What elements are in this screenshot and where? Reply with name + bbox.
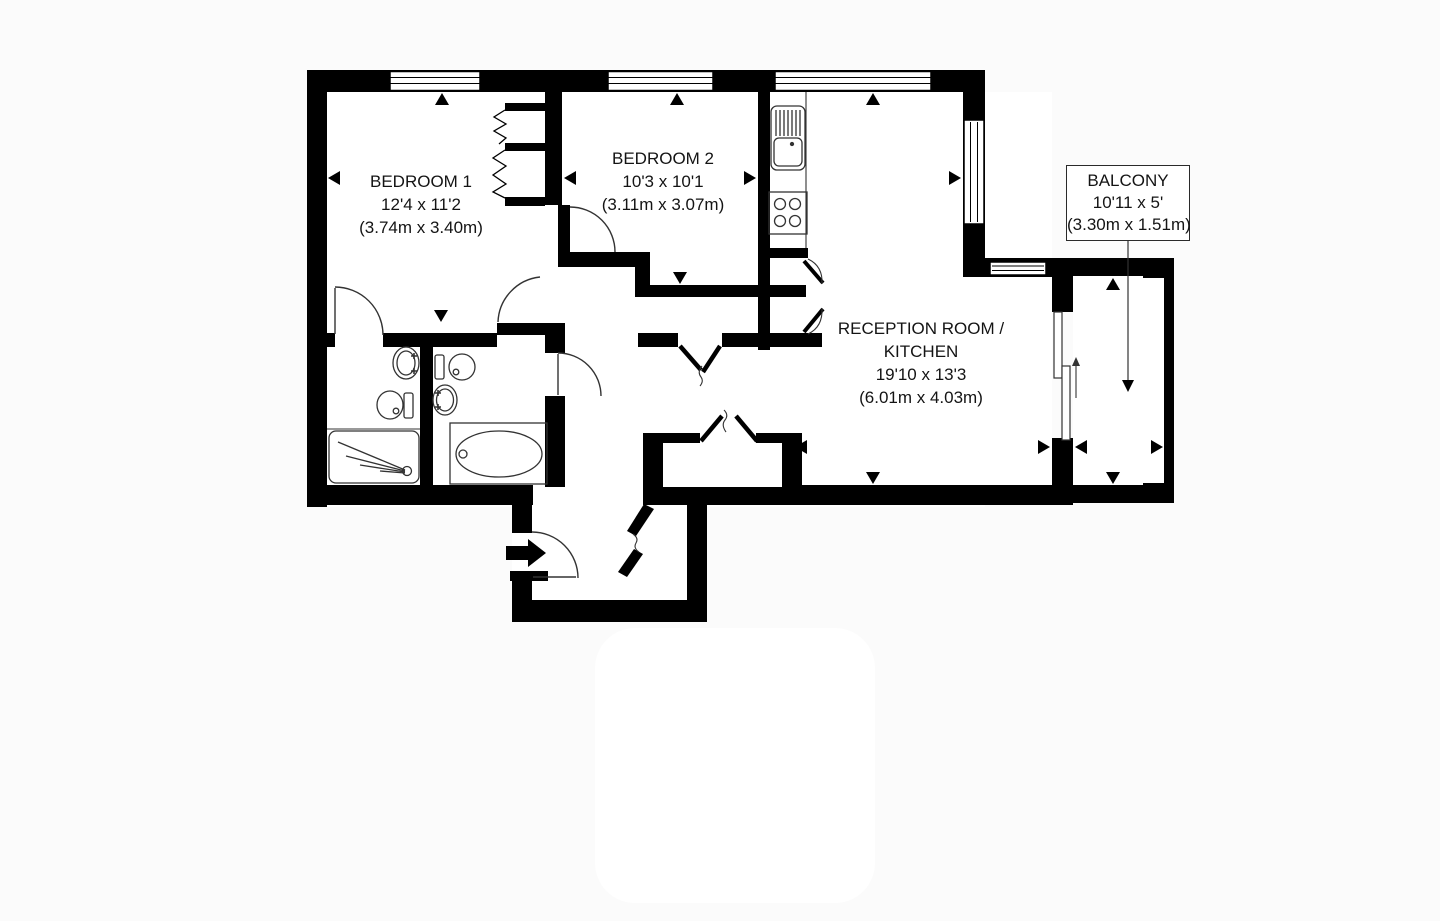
wall-bathroom-divider <box>420 347 433 485</box>
bedroom1-label: BEDROOM 1 12'4 x 11'2 (3.74m x 3.40m) <box>321 170 521 239</box>
window-bedroom2-icon <box>608 72 713 91</box>
wall-pocket-north <box>647 285 806 297</box>
floorplan-page: BEDROOM 1 12'4 x 11'2 (3.74m x 3.40m) BE… <box>0 0 1440 921</box>
wall-counter-end <box>768 248 808 258</box>
bedroom2-name: BEDROOM 2 <box>563 147 763 170</box>
bedroom2-size-imperial: 10'3 x 10'1 <box>563 170 763 193</box>
reception-label: RECEPTION ROOM / KITCHEN 19'10 x 13'3 (6… <box>796 317 1046 409</box>
bedroom1-name: BEDROOM 1 <box>321 170 521 193</box>
wall-balcony-corner-tr <box>1143 258 1174 278</box>
wall-bottom-left <box>307 485 533 505</box>
window-reception-east-icon <box>964 120 984 224</box>
bedroom1-size-metric: (3.74m x 3.40m) <box>321 216 521 239</box>
balcony-size-imperial: 10'11 x 5' <box>1067 192 1189 214</box>
reception-size-metric: (6.01m x 4.03m) <box>796 386 1046 409</box>
wall-bathroom2-east <box>545 396 565 487</box>
bedroom2-label: BEDROOM 2 10'3 x 10'1 (3.11m x 3.07m) <box>563 147 763 216</box>
wall-bathroom2-stub <box>545 323 565 353</box>
reception-name-line2: KITCHEN <box>796 340 1046 363</box>
wall-bedroom2-south <box>558 252 647 267</box>
balcony-name: BALCONY <box>1067 170 1189 192</box>
wall-balcony-right <box>1164 276 1174 485</box>
wall-corridor-left-upper <box>512 487 532 533</box>
wall-bedroom-divider <box>545 92 562 205</box>
wall-left <box>307 70 327 507</box>
bedroom2-size-metric: (3.11m x 3.07m) <box>563 193 763 216</box>
wall-corridor-right <box>687 505 707 622</box>
window-bedroom1-icon <box>390 72 480 91</box>
wall-bedroom1-south-left <box>307 333 335 347</box>
window-reception-north-icon <box>990 262 1046 275</box>
wall-vestibule-south <box>643 487 782 505</box>
wall-french-stub-left <box>643 433 700 443</box>
reception-size-imperial: 19'10 x 13'3 <box>796 363 1046 386</box>
floorplan-drawing <box>0 0 1440 921</box>
bedroom1-size-imperial: 12'4 x 11'2 <box>321 193 521 216</box>
balcony-label-box: BALCONY 10'11 x 5' (3.30m x 1.51m) <box>1066 165 1190 241</box>
balcony-size-metric: (3.30m x 1.51m) <box>1067 214 1189 236</box>
reception-name-line1: RECEPTION ROOM / <box>796 317 1046 340</box>
wall-bathroom-north <box>383 333 497 347</box>
wall-pocket-stub-left <box>638 333 678 347</box>
bedroom1-door-leaf <box>497 323 545 335</box>
wall-reception-south <box>782 485 1073 505</box>
wall-balcony-west-lower <box>1052 438 1073 505</box>
window-kitchen-icon <box>775 72 931 91</box>
wall-bedroom2-east <box>758 92 770 350</box>
wall-balcony-bottom <box>1071 485 1174 503</box>
wall-corridor-bottom <box>512 600 707 622</box>
wall-vestibule-west <box>643 443 663 495</box>
